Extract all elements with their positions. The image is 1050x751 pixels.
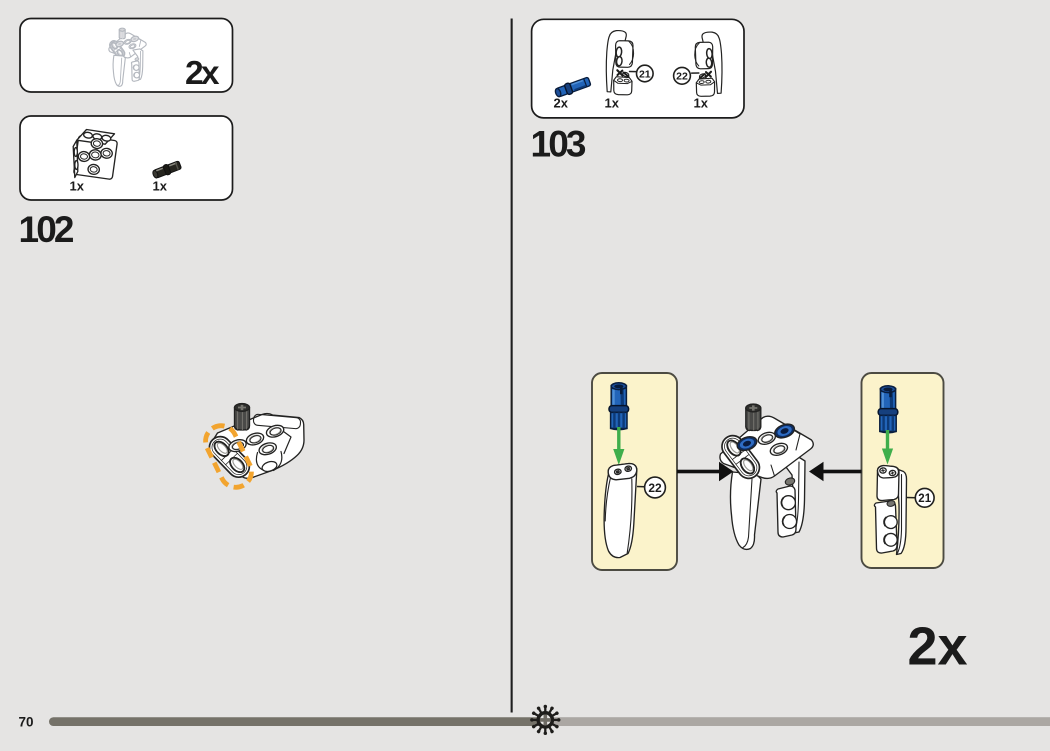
svg-text:2x: 2x — [908, 617, 968, 677]
svg-text:1x: 1x — [70, 179, 85, 194]
svg-text:1x: 1x — [605, 96, 620, 111]
svg-text:22: 22 — [648, 481, 662, 495]
svg-text:2x: 2x — [185, 55, 220, 92]
svg-text:2x: 2x — [554, 96, 569, 111]
svg-text:21: 21 — [639, 68, 651, 80]
svg-text:1x: 1x — [153, 179, 168, 194]
svg-text:70: 70 — [19, 715, 34, 730]
svg-text:1x: 1x — [694, 96, 709, 111]
svg-text:21: 21 — [918, 493, 931, 505]
svg-text:103: 103 — [531, 124, 586, 165]
svg-text:102: 102 — [19, 209, 74, 250]
svg-text:22: 22 — [676, 71, 688, 83]
